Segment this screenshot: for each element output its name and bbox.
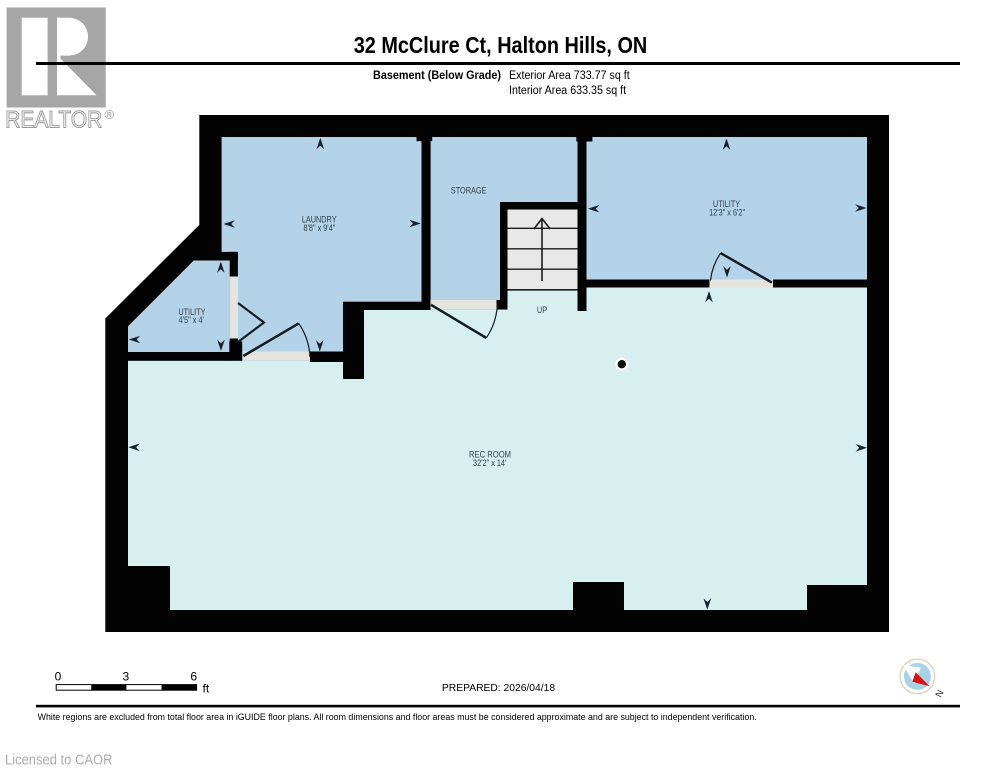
svg-text:32'2" x 14': 32'2" x 14': [473, 458, 507, 468]
svg-text:8'8" x 9'4": 8'8" x 9'4": [303, 223, 335, 233]
svg-text:White regions are excluded fro: White regions are excluded from total fl…: [38, 712, 757, 722]
svg-text:ft: ft: [203, 682, 210, 696]
svg-text:4'5" x 4': 4'5" x 4': [179, 316, 205, 326]
svg-text:Licensed to CAOR: Licensed to CAOR: [5, 753, 113, 768]
svg-text:3: 3: [123, 670, 130, 684]
svg-text:6: 6: [190, 670, 197, 684]
svg-text:STORAGE: STORAGE: [451, 186, 487, 196]
svg-text:0: 0: [55, 670, 62, 684]
svg-text:UP: UP: [537, 305, 547, 315]
svg-text:N: N: [932, 688, 945, 699]
svg-text:12'3" x 6'2": 12'3" x 6'2": [709, 208, 745, 218]
svg-text:PREPARED: 2026/04/18: PREPARED: 2026/04/18: [442, 683, 555, 694]
